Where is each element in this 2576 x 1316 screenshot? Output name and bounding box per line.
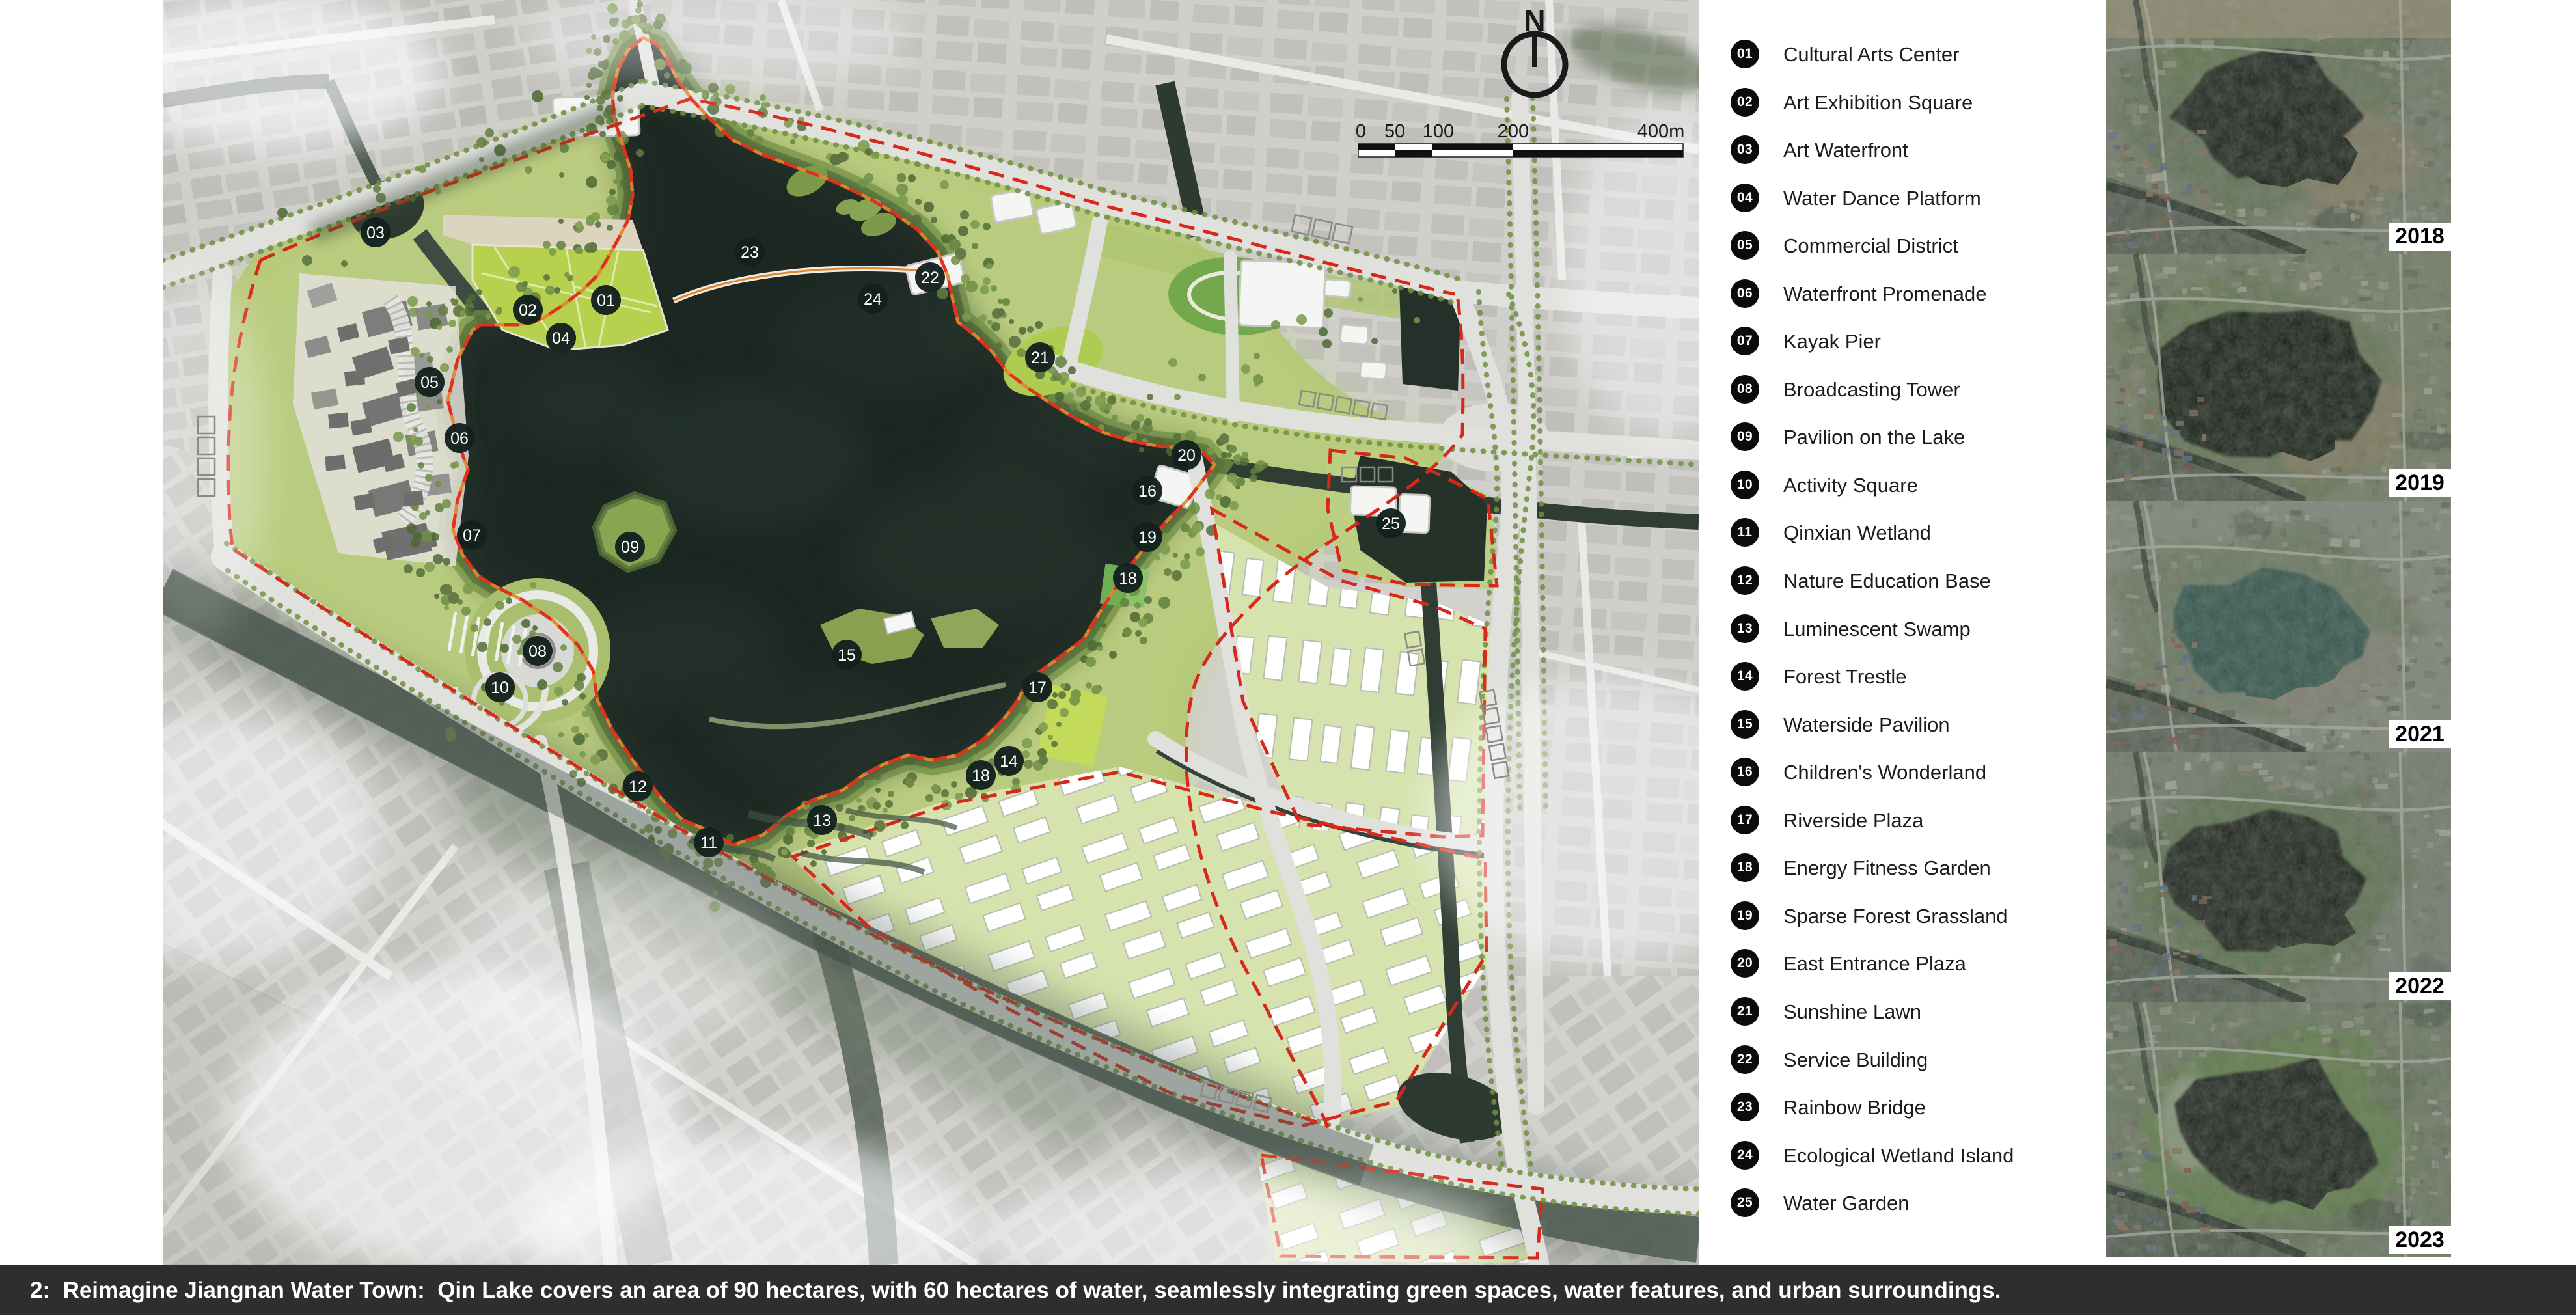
- svg-text:18: 18: [972, 767, 990, 785]
- svg-text:N: N: [1524, 3, 1545, 37]
- svg-text:12: 12: [629, 778, 647, 796]
- svg-text:06: 06: [450, 430, 469, 448]
- svg-text:19: 19: [1138, 528, 1157, 547]
- svg-text:22: 22: [921, 269, 939, 287]
- svg-text:13: 13: [813, 812, 831, 830]
- svg-text:16: 16: [1138, 482, 1157, 500]
- svg-text:02: 02: [519, 301, 537, 320]
- svg-text:05: 05: [420, 374, 439, 392]
- svg-text:20: 20: [1177, 446, 1196, 465]
- svg-text:25: 25: [1382, 515, 1400, 533]
- svg-text:100: 100: [1423, 121, 1454, 142]
- svg-text:15: 15: [838, 646, 856, 665]
- svg-text:11: 11: [700, 834, 717, 852]
- svg-text:23: 23: [741, 243, 759, 262]
- svg-text:200: 200: [1498, 121, 1529, 142]
- svg-text:01: 01: [597, 292, 615, 310]
- svg-text:17: 17: [1028, 679, 1047, 697]
- svg-text:10: 10: [491, 679, 509, 697]
- svg-text:400m: 400m: [1637, 121, 1685, 142]
- svg-text:24: 24: [864, 290, 882, 308]
- svg-text:09: 09: [621, 538, 639, 556]
- svg-text:03: 03: [366, 224, 385, 242]
- svg-text:04: 04: [552, 329, 570, 348]
- svg-text:21: 21: [1031, 349, 1049, 367]
- svg-text:08: 08: [528, 642, 547, 661]
- svg-text:0: 0: [1356, 121, 1366, 142]
- svg-text:50: 50: [1384, 121, 1405, 142]
- svg-text:07: 07: [463, 527, 481, 545]
- svg-text:18: 18: [1119, 569, 1137, 588]
- svg-text:14: 14: [1000, 752, 1018, 771]
